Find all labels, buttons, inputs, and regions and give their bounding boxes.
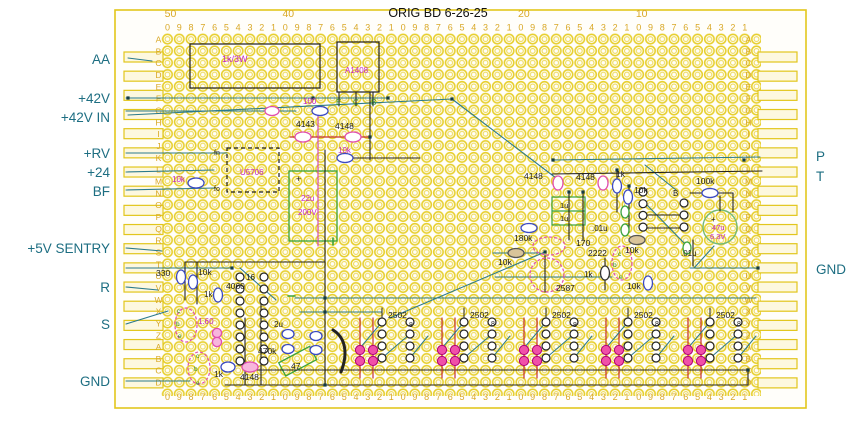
led-dot [437,356,446,365]
component-label: C [353,98,359,107]
component-body [598,176,608,190]
column-digit-top: 8 [189,23,194,33]
pin-hole [652,354,660,362]
column-digit-top: 6 [566,23,571,33]
component-label: 2502 [716,310,735,320]
bus-strip-right [758,244,797,254]
pin-hole [488,354,496,362]
row-letter-right: E [746,82,752,92]
bus-strip-right [758,320,797,330]
column-digit-top: 4 [471,23,476,33]
column-digit-top: 7 [436,23,441,33]
bus-strip-right [758,282,797,292]
row-letter-right: K [746,153,752,163]
pin-hole [734,330,742,338]
row-letter-left: H [155,117,161,127]
column-digit-top: 3 [719,23,724,33]
bus-strip-right [758,129,797,139]
component-body [621,224,629,236]
column-digit-top: 2 [730,23,735,33]
column-digit-bottom: 6 [683,392,688,402]
row-letter-left: Y [156,318,162,328]
board-canvas: 0099887766554433221100998877665544332211… [0,0,854,425]
column-digit-top: 9 [530,23,535,33]
column-digit-bottom: 6 [448,392,453,402]
bus-strip-right [758,301,797,311]
row-letter-left: A [156,342,162,352]
column-digit-bottom: 5 [224,392,229,402]
column-digit-top: 9 [412,23,417,33]
row-letter-left: D [155,70,161,80]
bus-strip-right [758,340,797,350]
column-digit-bottom: 8 [189,392,194,402]
led-dot [355,345,364,354]
component-label: 2502 [388,310,407,320]
column-digit-top: 6 [683,23,688,33]
component-label: 47 [291,361,301,371]
column-digit-bottom: 3 [247,392,252,402]
column-digit-top: 8 [660,23,665,33]
component-label: 1k [214,369,224,379]
pin-hole [236,321,244,329]
component-label: 10k [172,175,186,184]
led-dot [601,345,610,354]
component-label: 2587 [556,283,575,293]
column-digit-bottom: 0 [283,392,288,402]
led-dot [368,356,377,365]
bus-strip-right [758,110,797,120]
pin-hole [680,199,688,207]
row-letter-right: O [745,200,752,210]
component-label: 1k [584,270,593,279]
net-label-left: +24 [87,165,110,180]
column-digit-bottom: 0 [636,392,641,402]
pin-hole [706,318,714,326]
net-label-left: +RV [84,146,110,161]
column-digit-bottom: 1 [742,392,747,402]
row-letter-right: U [745,271,751,281]
component-label: 170 [576,238,590,248]
pin-hole [624,330,632,338]
row-letter-left: B [156,354,162,364]
column-digit-bottom: 7 [200,392,205,402]
column-digit-bottom: 8 [660,392,665,402]
pin-hole [624,342,632,350]
column-digit-top: 2 [495,23,500,33]
perfboard-layout-page: { "title": "ORIG BD 6-26-25", "colors": … [0,0,854,425]
column-number: 40 [282,8,294,20]
column-digit-top: 8 [542,23,547,33]
component-body [613,179,622,193]
column-digit-top: 5 [577,23,582,33]
pin-hole [260,321,268,329]
component-body [521,224,537,233]
column-digit-top: 4 [589,23,594,33]
junction-dot [567,190,570,193]
component-label: 1u [560,201,568,210]
row-letter-right: J [746,141,750,151]
component-label: 4148 [576,172,595,182]
pin-hole [406,354,414,362]
column-digit-top: 9 [648,23,653,33]
led-dot [696,356,705,365]
pin-hole [260,273,268,281]
pin-hole [542,354,550,362]
component-label: e [619,274,623,281]
column-number: 50 [165,8,177,20]
component-label: 2222 [588,248,607,258]
column-digit-bottom: 2 [613,392,618,402]
component-label: 4060 [226,281,245,291]
component-body [282,330,294,339]
column-digit-top: 1 [271,23,276,33]
zener-dot [212,337,221,346]
component-label: 8 [409,322,413,329]
column-digit-top: 7 [672,23,677,33]
column-digit-bottom: 5 [459,392,464,402]
pin-hole [260,309,268,317]
pin-hole [639,211,647,219]
component-body [629,236,645,245]
component-body [624,190,633,204]
net-label-left: S [101,317,110,332]
column-digit-top: 9 [295,23,300,33]
component-body [265,107,279,116]
bus-strip-right [758,378,797,388]
component-body [282,345,294,354]
component-label: 100k [696,176,715,186]
column-digit-bottom: 7 [436,392,441,402]
column-digit-bottom: 6 [330,392,335,402]
column-digit-bottom: 9 [412,392,417,402]
column-digit-bottom: 4 [236,392,241,402]
row-letter-right: Z [746,330,751,340]
column-digit-top: 6 [448,23,453,33]
row-letter-left: F [156,94,161,104]
component-label: B [371,98,376,107]
component-label: 6.3V [710,232,725,241]
junction-dot [627,184,630,187]
pin-hole [236,297,244,305]
component-label: b [176,321,180,328]
net-label-left: +5V SENTRY [27,241,110,256]
row-letter-right: M [745,176,752,186]
component-label: 200V [298,208,317,217]
row-letter-left: D [155,378,161,388]
junction-dot [368,135,371,138]
column-digit-bottom: 1 [624,392,629,402]
junction-dot [551,158,554,161]
column-digit-bottom: 4 [353,392,358,402]
column-digit-bottom: 3 [483,392,488,402]
board-title: ORIG BD 6-26-25 [388,6,487,20]
component-label: 10k [627,281,641,291]
component-body [221,362,235,372]
led-dot [683,345,692,354]
pin-hole [260,357,268,365]
column-digit-top: 7 [318,23,323,33]
bus-strip-right [758,186,797,196]
row-letter-right: X [746,307,752,317]
component-label: E [336,98,341,107]
component-label: 1k/3W [222,54,248,64]
component-label: 4143 [296,119,315,129]
component-body [242,362,258,372]
component-label: 10k [198,267,212,277]
junction-dot [756,266,759,269]
component-label: A1408 [345,66,369,75]
component-label: .01u [592,224,608,233]
pin-hole [460,342,468,350]
column-digit-bottom: 2 [377,392,382,402]
column-digit-bottom: 1 [389,392,394,402]
component-label: 16 [246,273,255,282]
pin-hole [460,354,468,362]
row-letter-right: V [746,283,752,293]
pin-hole [236,273,244,281]
bus-strip-right [758,263,797,273]
row-letter-left: I [157,129,159,139]
pin-hole [706,330,714,338]
pin-hole [378,354,386,362]
row-letter-right: B [746,46,752,56]
row-letter-right: Q [745,224,752,234]
column-digit-top: 0 [518,23,523,33]
column-digit-bottom: 8 [424,392,429,402]
pin-hole [460,330,468,338]
led-dot [437,345,446,354]
pin-hole [260,285,268,293]
led-dot [696,345,705,354]
component-label: 8 [573,322,577,329]
column-digit-bottom: 7 [318,392,323,402]
column-digit-bottom: 6 [212,392,217,402]
pin-hole [236,357,244,365]
row-letter-left: S [156,247,162,257]
bus-strip-right [758,225,797,235]
component-label: 8 [737,321,741,328]
component-label: b [613,262,617,269]
component-label: 1.60 [198,317,214,326]
row-letter-right: H [745,117,751,127]
column-digit-top: 0 [401,23,406,33]
led-dot [683,356,692,365]
component-body [214,288,223,302]
bus-strip-right [758,359,797,369]
junction-dot [230,266,233,269]
column-digit-top: 4 [707,23,712,33]
component-label: 1u [560,214,568,223]
row-letter-left: O [155,200,162,210]
column-digit-top: 0 [283,23,288,33]
column-digit-top: 9 [177,23,182,33]
component-label: 1k [616,169,626,179]
column-digit-top: 1 [624,23,629,33]
component-label: e [196,380,200,387]
component-label: 470k [258,346,277,356]
row-letter-right: B [746,354,752,364]
component-body [601,266,610,280]
column-digit-top: 0 [636,23,641,33]
component-label: 180k [514,233,533,243]
component-label: 10k [338,146,352,155]
column-digit-top: 6 [212,23,217,33]
pin-hole [236,333,244,341]
bus-strip-right [758,205,797,215]
column-digit-top: 3 [247,23,252,33]
bus-strip-right [758,90,797,100]
pin-hole [406,330,414,338]
pin-hole [706,354,714,362]
pin-hole [542,330,550,338]
row-letter-right: P [746,212,752,222]
component-label: 2502 [552,310,571,320]
row-letter-left: B [156,46,162,56]
component-body [345,132,361,142]
column-digit-top: 2 [377,23,382,33]
column-digit-bottom: 5 [695,392,700,402]
row-letter-left: R [155,236,161,246]
pin-hole [639,223,647,231]
column-digit-bottom: 0 [401,392,406,402]
column-digit-top: 5 [459,23,464,33]
column-digit-bottom: 9 [177,392,182,402]
component-body [177,270,186,284]
column-digit-bottom: 7 [554,392,559,402]
component-label: fn [214,150,220,157]
column-digit-bottom: 3 [601,392,606,402]
component-label: 10k [498,257,512,267]
pin-hole [624,354,632,362]
pin-hole [542,342,550,350]
column-digit-top: 2 [613,23,618,33]
component-label: 100 [303,97,317,106]
pin-hole [406,342,414,350]
column-digit-top: 6 [330,23,335,33]
row-letter-left: V [156,283,162,293]
column-number: 20 [518,8,530,20]
component-label: 1k [204,290,213,299]
pin-hole [680,223,688,231]
row-letter-right: W [744,295,752,305]
column-digit-bottom: 2 [259,392,264,402]
component-body [644,276,653,290]
column-digit-bottom: 2 [495,392,500,402]
pin-hole [378,318,386,326]
net-label-left: BF [93,184,110,199]
component-label: 8 [655,321,659,328]
net-label-left: +42V [78,91,110,106]
pin-hole [460,318,468,326]
component-label: 4148 [335,121,354,131]
row-letter-right: F [746,94,751,104]
row-letter-right: A [746,35,752,45]
led-dot [368,345,377,354]
component-label: 2u [274,320,283,329]
pin-hole [570,342,578,350]
pin-hole [570,354,578,362]
component-label: + [296,174,301,184]
net-label-left: AA [92,52,110,67]
pin-hole [488,330,496,338]
row-letter-left: E [156,82,162,92]
junction-dot [323,296,326,299]
component-body [188,178,204,188]
row-letter-right: Y [746,318,752,328]
component-body [310,346,322,355]
column-digit-bottom: 4 [589,392,594,402]
junction-dot [450,97,453,100]
junction-dot [323,310,326,313]
column-digit-top: 3 [483,23,488,33]
row-letter-right: C [745,58,751,68]
column-digit-bottom: 5 [342,392,347,402]
row-letter-right: I [747,129,749,139]
row-letter-left: P [156,212,162,222]
column-digit-bottom: 1 [271,392,276,402]
column-digit-top: 8 [306,23,311,33]
pin-hole [624,318,632,326]
row-letter-right: S [746,247,752,257]
net-label-left: GND [80,374,110,389]
column-digit-bottom: 8 [542,392,547,402]
component-body [702,189,718,198]
pin-hole [260,297,268,305]
bus-strip-right [758,167,797,177]
row-letter-left: W [154,295,162,305]
component-body [621,206,629,218]
led-dot [519,356,528,365]
column-digit-bottom: 4 [707,392,712,402]
led-dot [532,356,541,365]
pin-hole [378,330,386,338]
column-digit-top: 7 [554,23,559,33]
column-digit-bottom: 9 [648,392,653,402]
column-digit-bottom: 2 [730,392,735,402]
component-label: 2502 [634,310,653,320]
component-label: 22u [301,194,314,203]
row-letter-left: Z [156,330,161,340]
led-dot [614,345,623,354]
led-dot [601,356,610,365]
column-digit-top: 4 [353,23,358,33]
row-letter-left: L [156,165,161,175]
row-letter-left: K [156,153,162,163]
column-digit-top: 2 [259,23,264,33]
column-digit-bottom: 6 [566,392,571,402]
pin-hole [378,342,386,350]
component-label: 2502 [470,310,489,320]
component-label: 4148 [240,372,259,382]
pin-hole [734,342,742,350]
column-digit-bottom: 1 [507,392,512,402]
pin-hole [706,342,714,350]
row-letter-left: J [156,141,160,151]
component-label: 330 [156,268,170,278]
column-digit-top: 5 [695,23,700,33]
column-digit-top: 8 [424,23,429,33]
row-letter-left: A [156,35,162,45]
component-body [310,332,322,341]
column-digit-bottom: 4 [471,392,476,402]
net-label-right: T [816,169,824,184]
net-label-left: +42V IN [61,110,110,125]
component-label: U5706 [240,168,264,177]
led-dot [519,345,528,354]
junction-dot [386,96,389,99]
column-digit-bottom: 0 [518,392,523,402]
junction-dot [581,190,584,193]
